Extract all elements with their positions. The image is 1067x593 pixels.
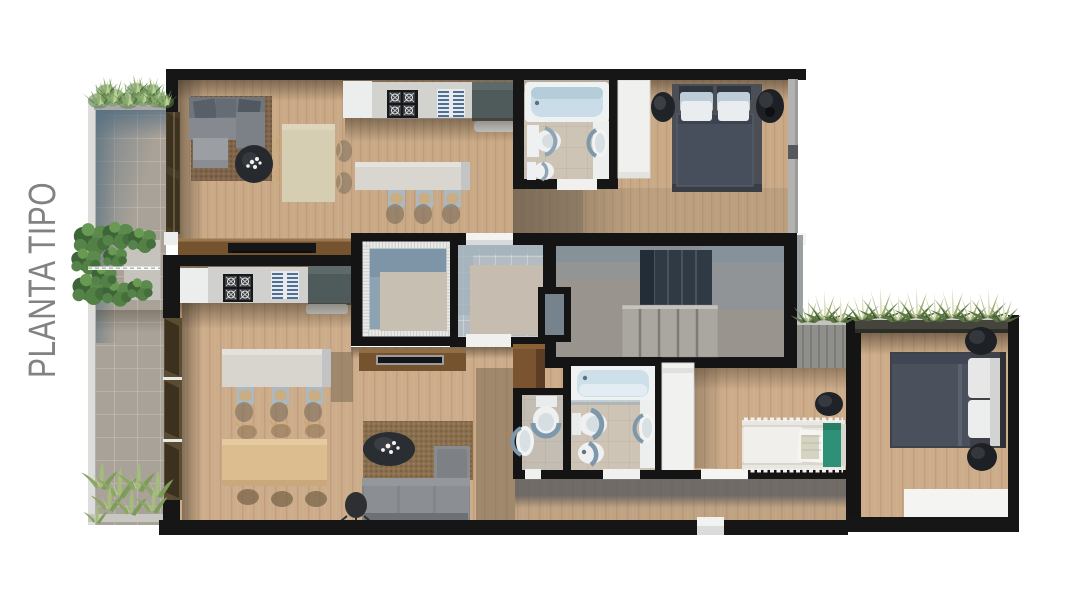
- svg-text:PLANTA TIPO: PLANTA TIPO: [22, 182, 64, 378]
